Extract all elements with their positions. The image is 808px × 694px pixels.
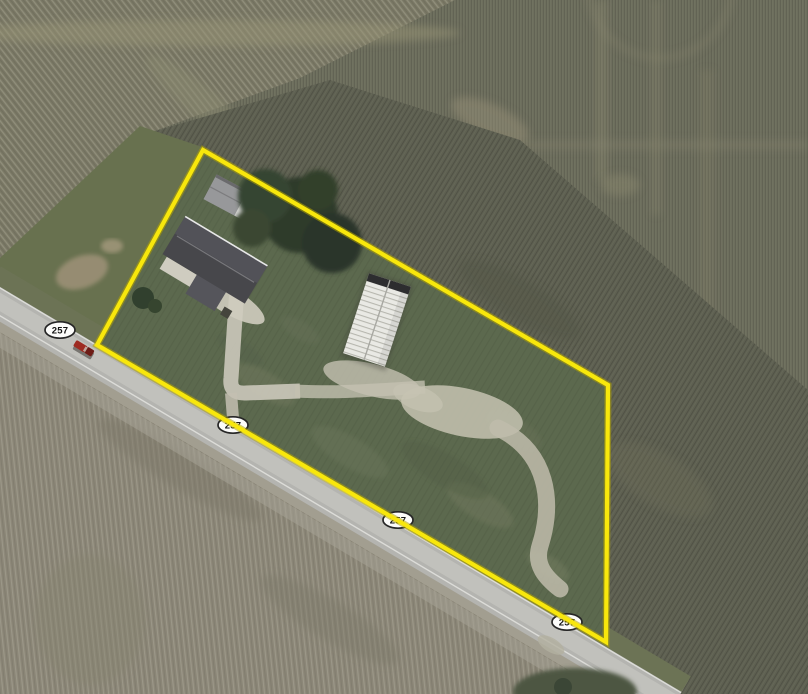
driveway-road-apron [231,393,233,418]
route-shield-label: 257 [52,325,68,336]
aerial-imagery: 257 257 257 257 [0,0,808,694]
dirt-patch-small [101,239,123,253]
route-shield-1: 257 [45,322,75,338]
map-canvas[interactable]: 257 257 257 257 [0,0,808,694]
